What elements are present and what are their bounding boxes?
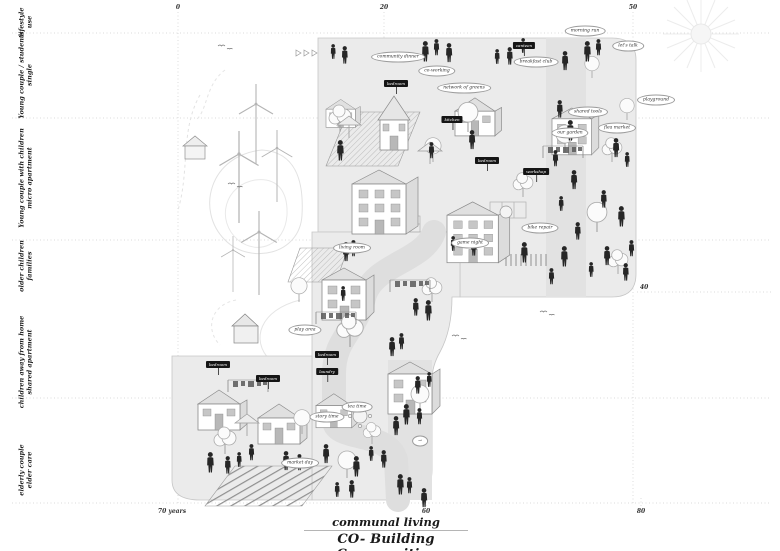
speech-bubble: market day [281, 458, 319, 469]
room-sign: workshop [523, 168, 549, 175]
speech-bubble: flea market [598, 123, 636, 134]
life-stage-label-text: Young couple / studentssingle [19, 31, 34, 118]
axis-tick-top: 20 [380, 4, 388, 11]
speech-bubble: living room [333, 243, 371, 254]
room-sign: canteen [513, 42, 535, 49]
stage-line2: elder care [26, 444, 34, 495]
speech-bubble: network of greens [437, 83, 491, 94]
life-stage-label-text: children away from homeshared apartment [19, 316, 34, 409]
room-sign: kitchen [441, 116, 462, 123]
axis-tick-bottom: 60 [422, 508, 430, 515]
text-overlay: 02050 70 years6080 40 lifestyleuseYoung … [0, 0, 780, 551]
axis-tick-top: 0 [176, 4, 180, 11]
page-title: CO- Building Communities [300, 532, 472, 551]
subtitle: communal living [300, 515, 472, 529]
speech-bubble: game night [451, 238, 489, 249]
stage-line2: families [26, 240, 34, 292]
life-stage-label-text: Young couple with childrenmicro apartmen… [19, 128, 34, 228]
speech-bubble: morning run [565, 26, 606, 37]
axis-tick-right: 40 [640, 284, 648, 291]
room-sign: bedroom [475, 157, 499, 164]
room-sign: bedroom [384, 80, 408, 87]
axis-tick-bottom: 70 years [158, 508, 186, 515]
life-stage-label-text: older childrenfamilies [19, 240, 34, 292]
speech-bubble: play area [288, 325, 321, 336]
title-block: communal living CO- Building Communities [300, 515, 472, 551]
speech-bubble: co-working [418, 66, 455, 77]
speech-bubble: let's talk [612, 41, 644, 52]
speech-bubble: breakfast club [514, 57, 559, 68]
stage-line2: single [26, 31, 34, 118]
speech-bubble: → [412, 436, 428, 447]
room-sign: laundry [316, 368, 338, 375]
communal-living-poster: 02050 70 years6080 40 lifestyleuseYoung … [0, 0, 780, 551]
speech-bubble: tea time [342, 402, 373, 413]
room-sign: bedroom [315, 351, 339, 358]
speech-bubble: community dinner [371, 52, 425, 63]
axis-tick-bottom: 80 [637, 508, 645, 515]
life-stage-label-text: elderly coupleelder care [19, 444, 34, 495]
stage-line2: micro apartment [26, 128, 34, 228]
speech-bubble: playground [637, 95, 675, 106]
speech-bubble: bike repair [521, 223, 558, 234]
room-sign: bedroom [206, 361, 230, 368]
speech-bubble: our garden [551, 128, 588, 139]
room-sign: bedroom [256, 375, 280, 382]
speech-bubble: story time [309, 412, 344, 423]
axis-tick-top: 50 [629, 4, 637, 11]
stage-line2: shared apartment [26, 316, 34, 409]
speech-bubble: shared tools [568, 107, 608, 118]
title-divider [304, 530, 468, 531]
